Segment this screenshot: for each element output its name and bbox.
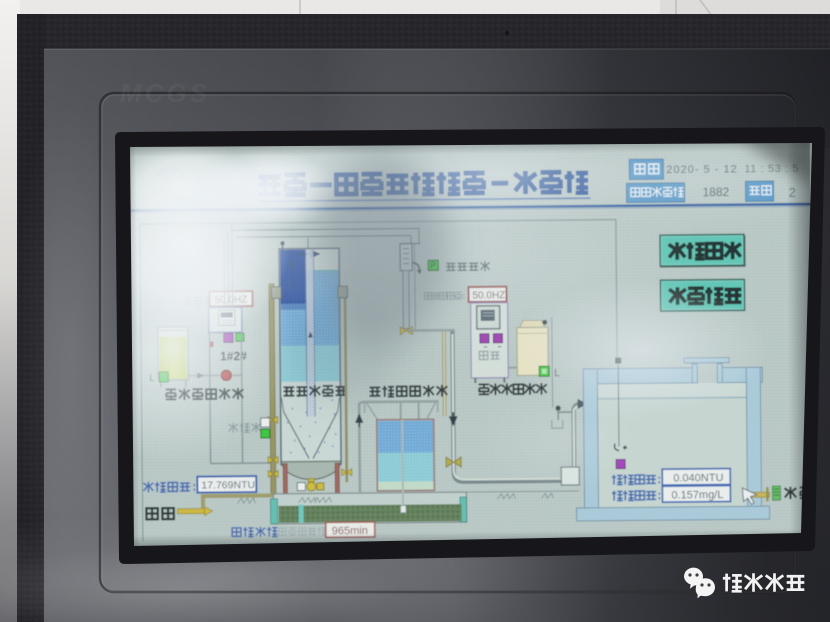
svg-text:MCGS: MCGS <box>120 78 210 108</box>
